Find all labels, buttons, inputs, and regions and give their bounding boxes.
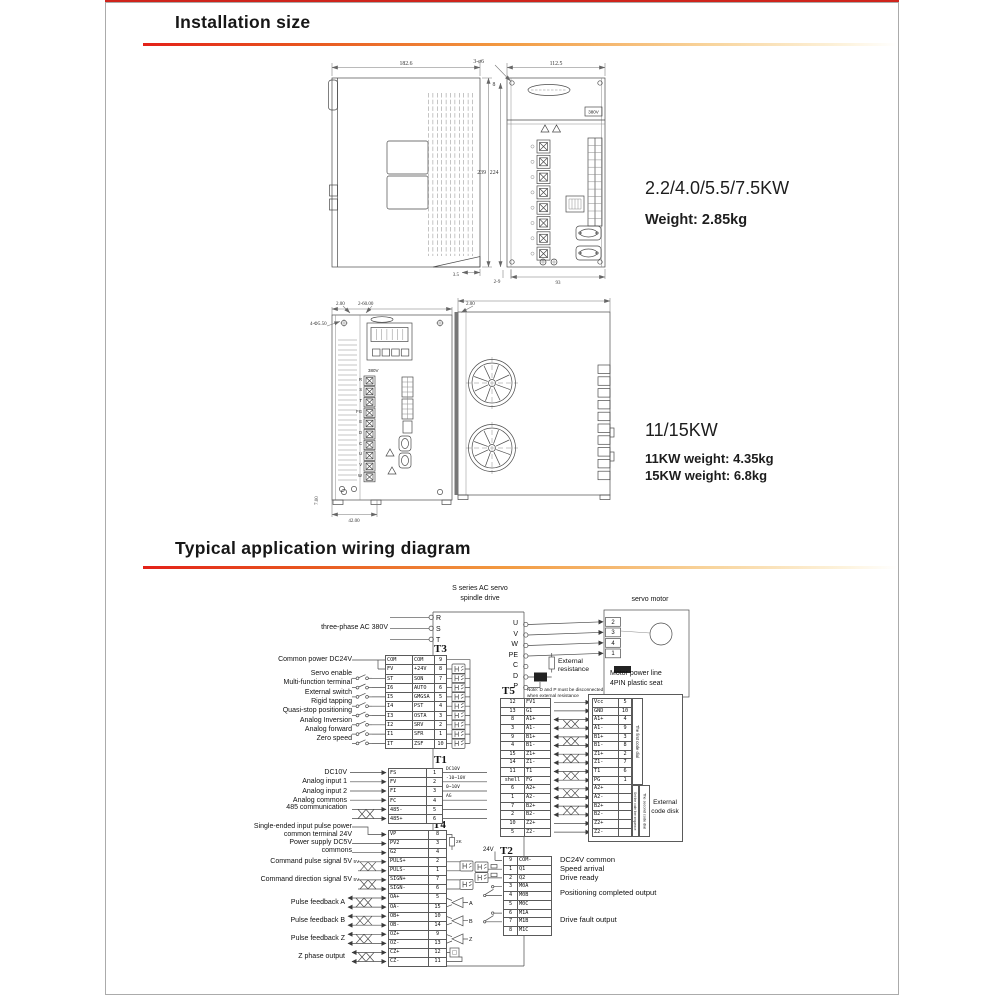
t1-485-label: 485 communication xyxy=(245,804,347,812)
signal-cell: FV xyxy=(386,665,413,674)
pin-cell: 3 xyxy=(501,725,525,734)
pin-cell: 4 xyxy=(435,702,447,711)
table-row: 12 FV1 xyxy=(501,699,551,708)
table-row: IT ZSF 10 xyxy=(386,740,447,749)
t4-5v-small2: 5V xyxy=(354,877,360,883)
t4-2k-resistor-label: 2K xyxy=(456,839,462,845)
table-row: 1 A2- xyxy=(501,794,551,803)
table-row: 15 Z1+ xyxy=(501,751,551,760)
dim-top-mid: 2-60.00 xyxy=(358,302,374,307)
pin-cell: 4 xyxy=(619,716,632,725)
pin-cell: 6 xyxy=(501,785,525,794)
pin-cell: 9 xyxy=(619,725,632,734)
signal-cell: FV xyxy=(389,778,427,787)
section-title-installation: Installation size xyxy=(175,12,310,33)
table-row: Z2+ xyxy=(593,820,632,829)
signal-cell: B1+ xyxy=(593,734,619,743)
signal-cell: Z2+ xyxy=(525,820,551,829)
signal-cell: 485+ xyxy=(389,815,427,824)
pin-cell xyxy=(619,829,632,838)
table-row: B1+ 3 xyxy=(593,734,632,743)
pin-cell: 1 xyxy=(427,769,443,778)
rst-terminal-letters: RST xyxy=(436,613,448,646)
signal-label: Servo enable xyxy=(150,669,352,678)
signal-label: Quasi-stop positioning xyxy=(150,706,352,715)
signal-cell: I6 xyxy=(386,684,413,693)
table-row: 14 Z1- xyxy=(501,759,551,768)
signal-cell: Z2- xyxy=(593,829,619,838)
pin-cell xyxy=(619,785,632,794)
table-row: 13 G1 xyxy=(501,708,551,717)
pin-cell: 6 xyxy=(435,684,447,693)
signal-cell: A1- xyxy=(525,725,551,734)
terminal-letter: U xyxy=(494,619,518,630)
table-row: COM COM 9 xyxy=(386,656,447,665)
dim-bottom-right: 93 xyxy=(556,281,562,286)
pin-cell: 1 xyxy=(504,866,518,875)
receiver-label: B xyxy=(469,913,479,931)
dim-bottom-mid: 2-9 xyxy=(494,280,501,285)
signal-cell: B1+ xyxy=(525,734,551,743)
t4-label-cmd-dir: Command direction signal 5V xyxy=(150,876,352,884)
terminal-letter: D xyxy=(351,428,362,439)
external-resistance xyxy=(528,653,555,688)
pin-cell: 13 xyxy=(429,940,447,949)
pin-cell: 9 xyxy=(429,931,447,940)
t4-label-cmd-pulse: Command pulse signal 5V xyxy=(150,858,352,866)
signal-cell: GMGSA xyxy=(413,693,435,702)
dim-top-left: 2.00 xyxy=(336,302,345,307)
table-row: I3 OSTA 3 xyxy=(386,712,447,721)
resistance-note-line1: Note: D and P must be disconnected xyxy=(527,687,611,693)
spec-weight-small: Weight: 2.85kg xyxy=(645,212,747,228)
pin-cell: 8 xyxy=(619,742,632,751)
table-row: I5 GMGSA 5 xyxy=(386,693,447,702)
terminal-letter: R xyxy=(436,613,448,624)
t2-24v-label: 24V xyxy=(483,846,494,854)
signal-cell: Q1 xyxy=(518,866,552,875)
signal-cell: OB- xyxy=(389,922,429,931)
signal-cell: OA- xyxy=(389,904,429,913)
dim-bottom-left: 3.5 xyxy=(453,273,460,278)
t3-power-label: Common power DC24V xyxy=(150,656,352,664)
dim-front-height: 224 xyxy=(490,170,499,176)
signal-cell: OZ+ xyxy=(389,931,429,940)
signal-cell: A2- xyxy=(525,794,551,803)
pin-cell: 3 xyxy=(429,840,447,849)
table-row: 3 M0A xyxy=(504,883,552,892)
dim-width: 182.6 xyxy=(399,61,412,67)
table-row: A1- 9 xyxy=(593,725,632,734)
spec-weight-11kw: 11KW weight: 4.35kg xyxy=(645,450,774,467)
pin-cell: 8 xyxy=(504,927,518,936)
first-code-dial-label: The first code dial xyxy=(632,698,644,785)
signal-cell: PULS+ xyxy=(389,858,429,867)
pin-cell: 7 xyxy=(429,876,447,885)
pin-cell: 10 xyxy=(429,913,447,922)
table-row: Z1- 7 xyxy=(593,759,632,768)
signal-cell: A1+ xyxy=(525,716,551,725)
pin-cell: 7 xyxy=(435,675,447,684)
signal-label: DC10V xyxy=(200,768,347,777)
dimension-lines xyxy=(332,63,605,279)
table-row: OA- 15 xyxy=(389,904,447,913)
pin-cell: 12 xyxy=(501,699,525,708)
dim-bottom-left: 7.00 xyxy=(315,496,320,505)
signal-cell: M1B xyxy=(518,918,552,927)
range-note: AG xyxy=(446,792,465,801)
table-row: B2- xyxy=(593,811,632,820)
terminal-letter: U xyxy=(351,449,362,460)
side-view xyxy=(455,312,615,500)
pin-cell: 15 xyxy=(429,904,447,913)
signal-label: Analog forward xyxy=(150,725,352,734)
table-row: 4 M0B xyxy=(504,892,552,901)
section-underline xyxy=(143,566,897,569)
table-row: A2- xyxy=(593,794,632,803)
terminal-letter: S xyxy=(436,624,448,635)
signal-cell: OZ- xyxy=(389,940,429,949)
section-underline xyxy=(143,43,897,46)
table-row: I2 SRV 2 xyxy=(386,721,447,730)
pin-cell: 10 xyxy=(619,708,632,717)
encoder-table: Vcc 5 GND 10 A1+ 4 A1- 9 B1+ 3 B1- 8 Z1+… xyxy=(592,698,632,837)
pin-cell: 2 xyxy=(501,811,525,820)
signal-cell: Q2 xyxy=(518,875,552,884)
signal-cell: 485- xyxy=(389,806,427,815)
table-row: OZ+ 9 xyxy=(389,931,447,940)
signal-cell: SFR xyxy=(413,730,435,739)
t2-label-fault: Drive fault output xyxy=(560,916,617,924)
table-row: shell FG xyxy=(501,777,551,786)
pin-cell: 4 xyxy=(501,742,525,751)
terminal-letter: T xyxy=(351,396,362,407)
pin-cell: 4 xyxy=(429,849,447,858)
table-row: 10 Z2+ xyxy=(501,820,551,829)
signal-cell: SON xyxy=(413,675,435,684)
table-row: A1+ 4 xyxy=(593,716,632,725)
table-row: PULS+ 2 xyxy=(389,858,447,867)
signal-cell: A2+ xyxy=(593,785,619,794)
signal-cell: A2- xyxy=(593,794,619,803)
pin-cell: 2 xyxy=(619,751,632,760)
dim-holes: 3-ø6 xyxy=(473,59,484,65)
pin-cell: 1 xyxy=(435,730,447,739)
signal-cell: FC xyxy=(389,797,427,806)
signal-cell: COM xyxy=(386,656,413,665)
pin-cell: 10 xyxy=(435,740,447,749)
pin-cell: 1 xyxy=(429,867,447,876)
t2-output-circuits xyxy=(475,852,502,924)
signal-cell: OB+ xyxy=(389,913,429,922)
pin-cell: 11 xyxy=(501,768,525,777)
signal-cell: SRV xyxy=(413,721,435,730)
pin-number: 1 xyxy=(606,649,621,660)
motor-caption-line1: Motor power line xyxy=(610,670,662,678)
t2-label-speed: Speed arrival xyxy=(560,865,604,873)
signal-cell: OSTA xyxy=(413,712,435,721)
pin-cell: 2 xyxy=(435,721,447,730)
table-row: VP 8 xyxy=(389,831,447,840)
signal-cell: I4 xyxy=(386,702,413,711)
terminal-letter: W xyxy=(494,640,518,651)
signal-cell: Z2+ xyxy=(593,820,619,829)
table-row: OB+ 10 xyxy=(389,913,447,922)
range-note: 0~10V xyxy=(446,783,465,792)
encoder-caption-line2: code disk xyxy=(650,808,680,816)
t4-label-dc5v1: Power supply DC5V xyxy=(150,839,352,847)
t2-label-dc24v: DC24V common xyxy=(560,856,615,864)
terminal-letter: C xyxy=(351,439,362,450)
pin-cell: 3 xyxy=(435,712,447,721)
pin-cell: 3 xyxy=(504,883,518,892)
t4-label-dc5v2: commons xyxy=(150,847,352,855)
signal-cell: B2+ xyxy=(525,803,551,812)
table-row: T1 6 xyxy=(593,768,632,777)
t4-label-fb-z: Pulse feedback Z xyxy=(150,935,345,943)
signal-cell: G2 xyxy=(389,849,429,858)
pin-cell xyxy=(619,811,632,820)
dim-hole-offset: 8 xyxy=(493,82,496,88)
receiver-label: Z xyxy=(469,931,479,949)
dim-front-width: 112.5 xyxy=(550,61,563,67)
voltage-label: 380V xyxy=(368,368,379,373)
terminal-letter: C xyxy=(494,661,518,672)
signal-label: External switch xyxy=(150,688,352,697)
pin-cell: 6 xyxy=(429,885,447,894)
signal-cell: FV1 xyxy=(525,699,551,708)
ext-resistance-label2: resistance xyxy=(558,666,589,674)
table-row: 485- 5 xyxy=(389,806,443,815)
t2-label-positioning: Positioning completed output xyxy=(560,889,656,897)
t4-label-fb-a: Pulse feedback A xyxy=(150,899,345,907)
pin-cell: 5 xyxy=(504,901,518,910)
table-row: 3 A1- xyxy=(501,725,551,734)
table-row: FC 4 xyxy=(389,797,443,806)
side-view xyxy=(329,78,481,267)
pin-cell: 11 xyxy=(429,958,447,967)
signal-cell: I3 xyxy=(386,712,413,721)
signal-cell: M0A xyxy=(518,883,552,892)
signal-cell: Z1+ xyxy=(525,751,551,760)
table-row: I6 AUTO 6 xyxy=(386,684,447,693)
t4-wires xyxy=(348,827,386,962)
pin-cell xyxy=(619,803,632,812)
table-row: OZ- 13 xyxy=(389,940,447,949)
signal-cell: M0B xyxy=(518,892,552,901)
signal-cell: Z2- xyxy=(525,829,551,838)
signal-cell: OA+ xyxy=(389,894,429,903)
table-row: OA+ 5 xyxy=(389,894,447,903)
signal-cell: A2+ xyxy=(525,785,551,794)
dimension-lines xyxy=(327,298,610,517)
pin-cell: 8 xyxy=(429,831,447,840)
pin-cell: 1 xyxy=(619,777,632,786)
pin-cell: shell xyxy=(501,777,525,786)
pin-cell: 7 xyxy=(619,759,632,768)
signal-cell: B2- xyxy=(593,811,619,820)
signal-label: Analog Inversion xyxy=(150,716,352,725)
table-row: 9 B1+ xyxy=(501,734,551,743)
signal-cell: PG xyxy=(593,777,619,786)
pin-cell: 14 xyxy=(429,922,447,931)
table-row: PV2 3 xyxy=(389,840,447,849)
table-row: FS 1 xyxy=(389,769,443,778)
pin-cell: 6 xyxy=(619,768,632,777)
table-row: SIGN- 6 xyxy=(389,885,447,894)
pin-cell: 5 xyxy=(435,693,447,702)
signal-cell: AUTO xyxy=(413,684,435,693)
table-row: 4 B1- xyxy=(501,742,551,751)
signal-label: Analog input 2 xyxy=(200,787,347,796)
terminal-letter: PE xyxy=(494,651,518,662)
pin-cell: 2 xyxy=(427,778,443,787)
cooling-fan-icon xyxy=(466,357,518,409)
installation-drawing-small: 182.6 112.5 3-ø6 8 239 224 3.5 2-9 93 38… xyxy=(300,50,640,300)
signal-cell: SIGN- xyxy=(389,885,429,894)
spec-models-large: 11/15KW xyxy=(645,420,718,441)
pin-cell: 9 xyxy=(504,857,518,866)
manual-page: Installation size xyxy=(0,0,1000,1000)
signal-cell: A1- xyxy=(593,725,619,734)
table-row: G2 4 xyxy=(389,849,447,858)
t2-title: T2 xyxy=(500,845,513,857)
signal-cell: PST xyxy=(413,702,435,711)
table-row: FI 3 xyxy=(389,787,443,796)
signal-label: Zero speed xyxy=(150,734,352,743)
signal-cell: B2+ xyxy=(593,803,619,812)
pin-cell: 5 xyxy=(619,699,632,708)
spec-weight-15kw: 15KW weight: 6.8kg xyxy=(645,467,767,484)
signal-cell: IT xyxy=(386,740,413,749)
table-row: 6 M1A xyxy=(504,910,552,919)
signal-cell: T1 xyxy=(525,768,551,777)
signal-cell: Vcc xyxy=(593,699,619,708)
terminal-letter: V xyxy=(494,630,518,641)
table-row: I4 PST 4 xyxy=(386,702,447,711)
signal-cell: T1 xyxy=(593,768,619,777)
dim-height: 239 xyxy=(477,170,486,176)
t3-switches xyxy=(352,660,385,745)
pin-cell: 3 xyxy=(619,734,632,743)
section-title-wiring: Typical application wiring diagram xyxy=(175,538,471,559)
t3-title: T3 xyxy=(434,643,447,655)
voltage-label: 380V xyxy=(588,110,599,115)
signal-cell: CZ- xyxy=(389,958,429,967)
table-row: 11 T1 xyxy=(501,768,551,777)
drive-title-line2: spindle drive xyxy=(430,595,530,603)
t1-range-notes: DC10V-10~10V0~10VAG xyxy=(446,765,465,802)
pin-cell: 12 xyxy=(429,949,447,958)
signal-cell: M0C xyxy=(518,901,552,910)
table-row: 9 COM- xyxy=(504,857,552,866)
signal-cell: Z1+ xyxy=(593,751,619,760)
signal-label: Analog input 1 xyxy=(200,777,347,786)
table-row: SIGN+ 7 xyxy=(389,876,447,885)
table-row: FV 2 xyxy=(389,778,443,787)
t3-input-circuits xyxy=(446,660,470,749)
terminal-letter: R xyxy=(351,375,362,386)
t4-5v-small1: 5V xyxy=(354,859,360,865)
pin-number: 3 xyxy=(606,628,621,639)
signal-label: Rigid tapping xyxy=(150,697,352,706)
warning-triangle-icon xyxy=(541,125,561,132)
pin-cell: 8 xyxy=(435,665,447,674)
range-note: DC10V xyxy=(446,765,465,774)
terminal-letter: V xyxy=(351,460,362,471)
signal-cell: COM xyxy=(413,656,435,665)
pin-cell: 5 xyxy=(427,806,443,815)
pin-cell: 9 xyxy=(435,656,447,665)
signal-cell: FG xyxy=(525,777,551,786)
ext-resistance-label1: External xyxy=(558,658,583,666)
terminal-letter: W xyxy=(351,471,362,482)
cooling-fan-icon xyxy=(466,422,518,474)
t1-signal-labels: DC10VAnalog input 1Analog input 2Analog … xyxy=(200,768,347,805)
table-row: 2 Q2 xyxy=(504,875,552,884)
table-row: 8 M1C xyxy=(504,927,552,936)
table-row: GND 10 xyxy=(593,708,632,717)
table-row: CZ+ 12 xyxy=(389,949,447,958)
table-row: I1 SFR 1 xyxy=(386,730,447,739)
dim-bottom: 42.00 xyxy=(348,519,360,524)
table-row: 8 A1+ xyxy=(501,716,551,725)
t3-signal-labels: Servo enableMulti-function terminalExter… xyxy=(150,669,352,743)
output-terminal-letters: UVWPECDP xyxy=(494,619,518,693)
signal-cell: B1- xyxy=(525,742,551,751)
t4-label-pulse-power2: common terminal 24V xyxy=(150,831,352,839)
pin-cell: 4 xyxy=(504,892,518,901)
terminal-letter: D xyxy=(494,672,518,683)
code-line-sequence-label: Set the code line sequence xyxy=(632,785,639,838)
t1-title: T1 xyxy=(434,754,447,766)
pin-cell: 4 xyxy=(427,797,443,806)
warning-triangle-icon xyxy=(386,449,396,474)
range-note: -10~10V xyxy=(446,774,465,783)
table-row: OB- 14 xyxy=(389,922,447,931)
signal-cell: PV2 xyxy=(389,840,429,849)
t4-label-pulse-power1: Single-ended input pulse power xyxy=(150,823,352,831)
t5-encoder-wires xyxy=(554,702,590,832)
table-row: B1- 8 xyxy=(593,742,632,751)
table-row: Z2- xyxy=(593,829,632,838)
dim-holes: 4-Φ5.50 xyxy=(310,322,327,327)
signal-cell: I1 xyxy=(386,730,413,739)
table-row: PG 1 xyxy=(593,777,632,786)
spec-models-small: 2.2/4.0/5.5/7.5KW xyxy=(645,178,789,199)
t3-table: COM COM 9 FV +24V 8 ST SON 7 I6 AUTO 6 I… xyxy=(385,655,447,749)
terminal-letter: S xyxy=(351,385,362,396)
table-row: 5 M0C xyxy=(504,901,552,910)
front-view xyxy=(507,78,605,267)
pin-cell: 14 xyxy=(501,759,525,768)
signal-cell: Z1- xyxy=(593,759,619,768)
t5-table: 12 FV1 13 G1 8 A1+ 3 A1- 9 B1+ 4 B1- 15 … xyxy=(500,698,551,837)
pin-cell: 15 xyxy=(501,751,525,760)
pin-cell: 6 xyxy=(427,815,443,824)
pin-cell: 3 xyxy=(427,787,443,796)
signal-cell: VP xyxy=(389,831,429,840)
t1-table: FS 1 FV 2 FI 3 FC 4 485- 5 485+ 6 xyxy=(388,768,443,824)
pin-cell: 2 xyxy=(429,858,447,867)
motor-caption-line2: 4PIN plastic seat xyxy=(610,680,663,688)
pin-cell: 6 xyxy=(504,910,518,919)
pin-cell: 7 xyxy=(504,918,518,927)
signal-cell: M1C xyxy=(518,927,552,936)
table-row: Z1+ 2 xyxy=(593,751,632,760)
dim-side-top: 2.00 xyxy=(466,302,475,307)
pin-cell xyxy=(619,794,632,803)
